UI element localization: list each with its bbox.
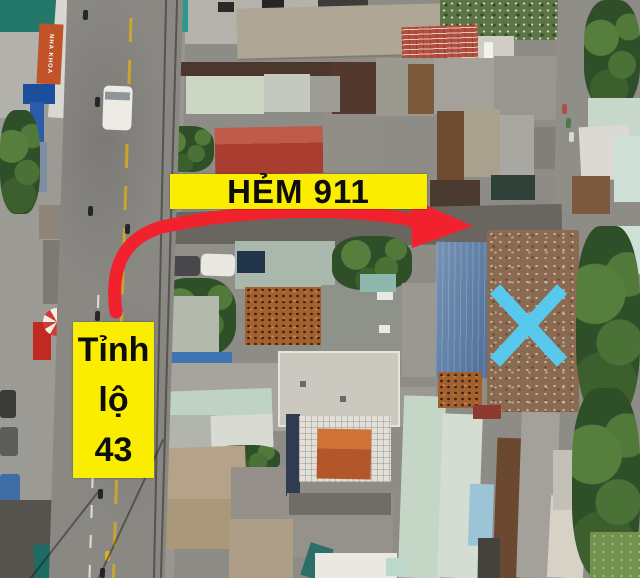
motorbike bbox=[125, 224, 130, 234]
solar-panel bbox=[237, 251, 265, 273]
rooftop bbox=[186, 76, 264, 114]
shop-sign: NHA KHOA bbox=[36, 23, 63, 84]
motorbike bbox=[566, 118, 571, 128]
parked-car bbox=[0, 474, 20, 503]
rooftop bbox=[210, 414, 273, 449]
rooftop bbox=[323, 114, 377, 172]
ac-unit bbox=[379, 325, 390, 333]
rooftop bbox=[218, 2, 234, 12]
rooftop bbox=[156, 499, 232, 549]
van-windshield bbox=[105, 92, 130, 101]
rooftop bbox=[468, 484, 494, 547]
rooftop bbox=[500, 115, 534, 175]
rooftop bbox=[464, 109, 500, 177]
roof-vent bbox=[300, 381, 306, 387]
rooftop bbox=[229, 519, 293, 578]
aerial-photo: NHA KHOA HẺM 911 Tỉnh lộ 43 bbox=[0, 0, 640, 578]
parked-van bbox=[484, 42, 493, 59]
vacant-dirt-lot bbox=[487, 230, 579, 412]
rooftop-rust bbox=[437, 111, 464, 181]
motorbike bbox=[569, 132, 574, 142]
rooftop bbox=[231, 467, 291, 523]
parked-car bbox=[0, 427, 18, 456]
blue-metal-roof bbox=[435, 242, 488, 378]
wall bbox=[286, 414, 300, 496]
rooftop bbox=[289, 493, 391, 515]
rooftop bbox=[315, 553, 397, 578]
motorbike bbox=[95, 311, 100, 321]
trees bbox=[584, 0, 640, 108]
rooftop bbox=[494, 56, 558, 120]
rooftop bbox=[434, 58, 496, 114]
road-name-label: Tỉnh lộ 43 bbox=[73, 322, 154, 478]
motorbike bbox=[562, 104, 567, 114]
orange-tile-roof bbox=[438, 372, 482, 408]
shadow-gap bbox=[478, 538, 500, 578]
trees bbox=[0, 110, 40, 214]
shop-sign bbox=[23, 84, 55, 104]
rooftop bbox=[264, 74, 310, 112]
grass bbox=[590, 532, 640, 578]
old-tile-roof bbox=[245, 287, 321, 345]
orange-tile-roof bbox=[317, 429, 372, 480]
rooftop bbox=[386, 558, 406, 576]
parked-car bbox=[201, 253, 236, 276]
rooftop bbox=[473, 405, 501, 419]
motorbike bbox=[95, 97, 100, 107]
rooftop-rust bbox=[408, 64, 436, 114]
rooftop bbox=[402, 283, 436, 377]
rooftop bbox=[614, 136, 640, 202]
alley-name-label: HẺM 911 bbox=[170, 174, 427, 209]
motorbike bbox=[88, 206, 93, 216]
rooftop bbox=[310, 76, 340, 112]
parked-car bbox=[0, 390, 16, 418]
ac-unit bbox=[377, 291, 393, 300]
rooftop bbox=[360, 274, 396, 292]
rust-wall bbox=[572, 176, 610, 214]
motorbike bbox=[83, 10, 88, 20]
roof-vent bbox=[340, 396, 346, 402]
red-tile-roof bbox=[215, 126, 324, 175]
